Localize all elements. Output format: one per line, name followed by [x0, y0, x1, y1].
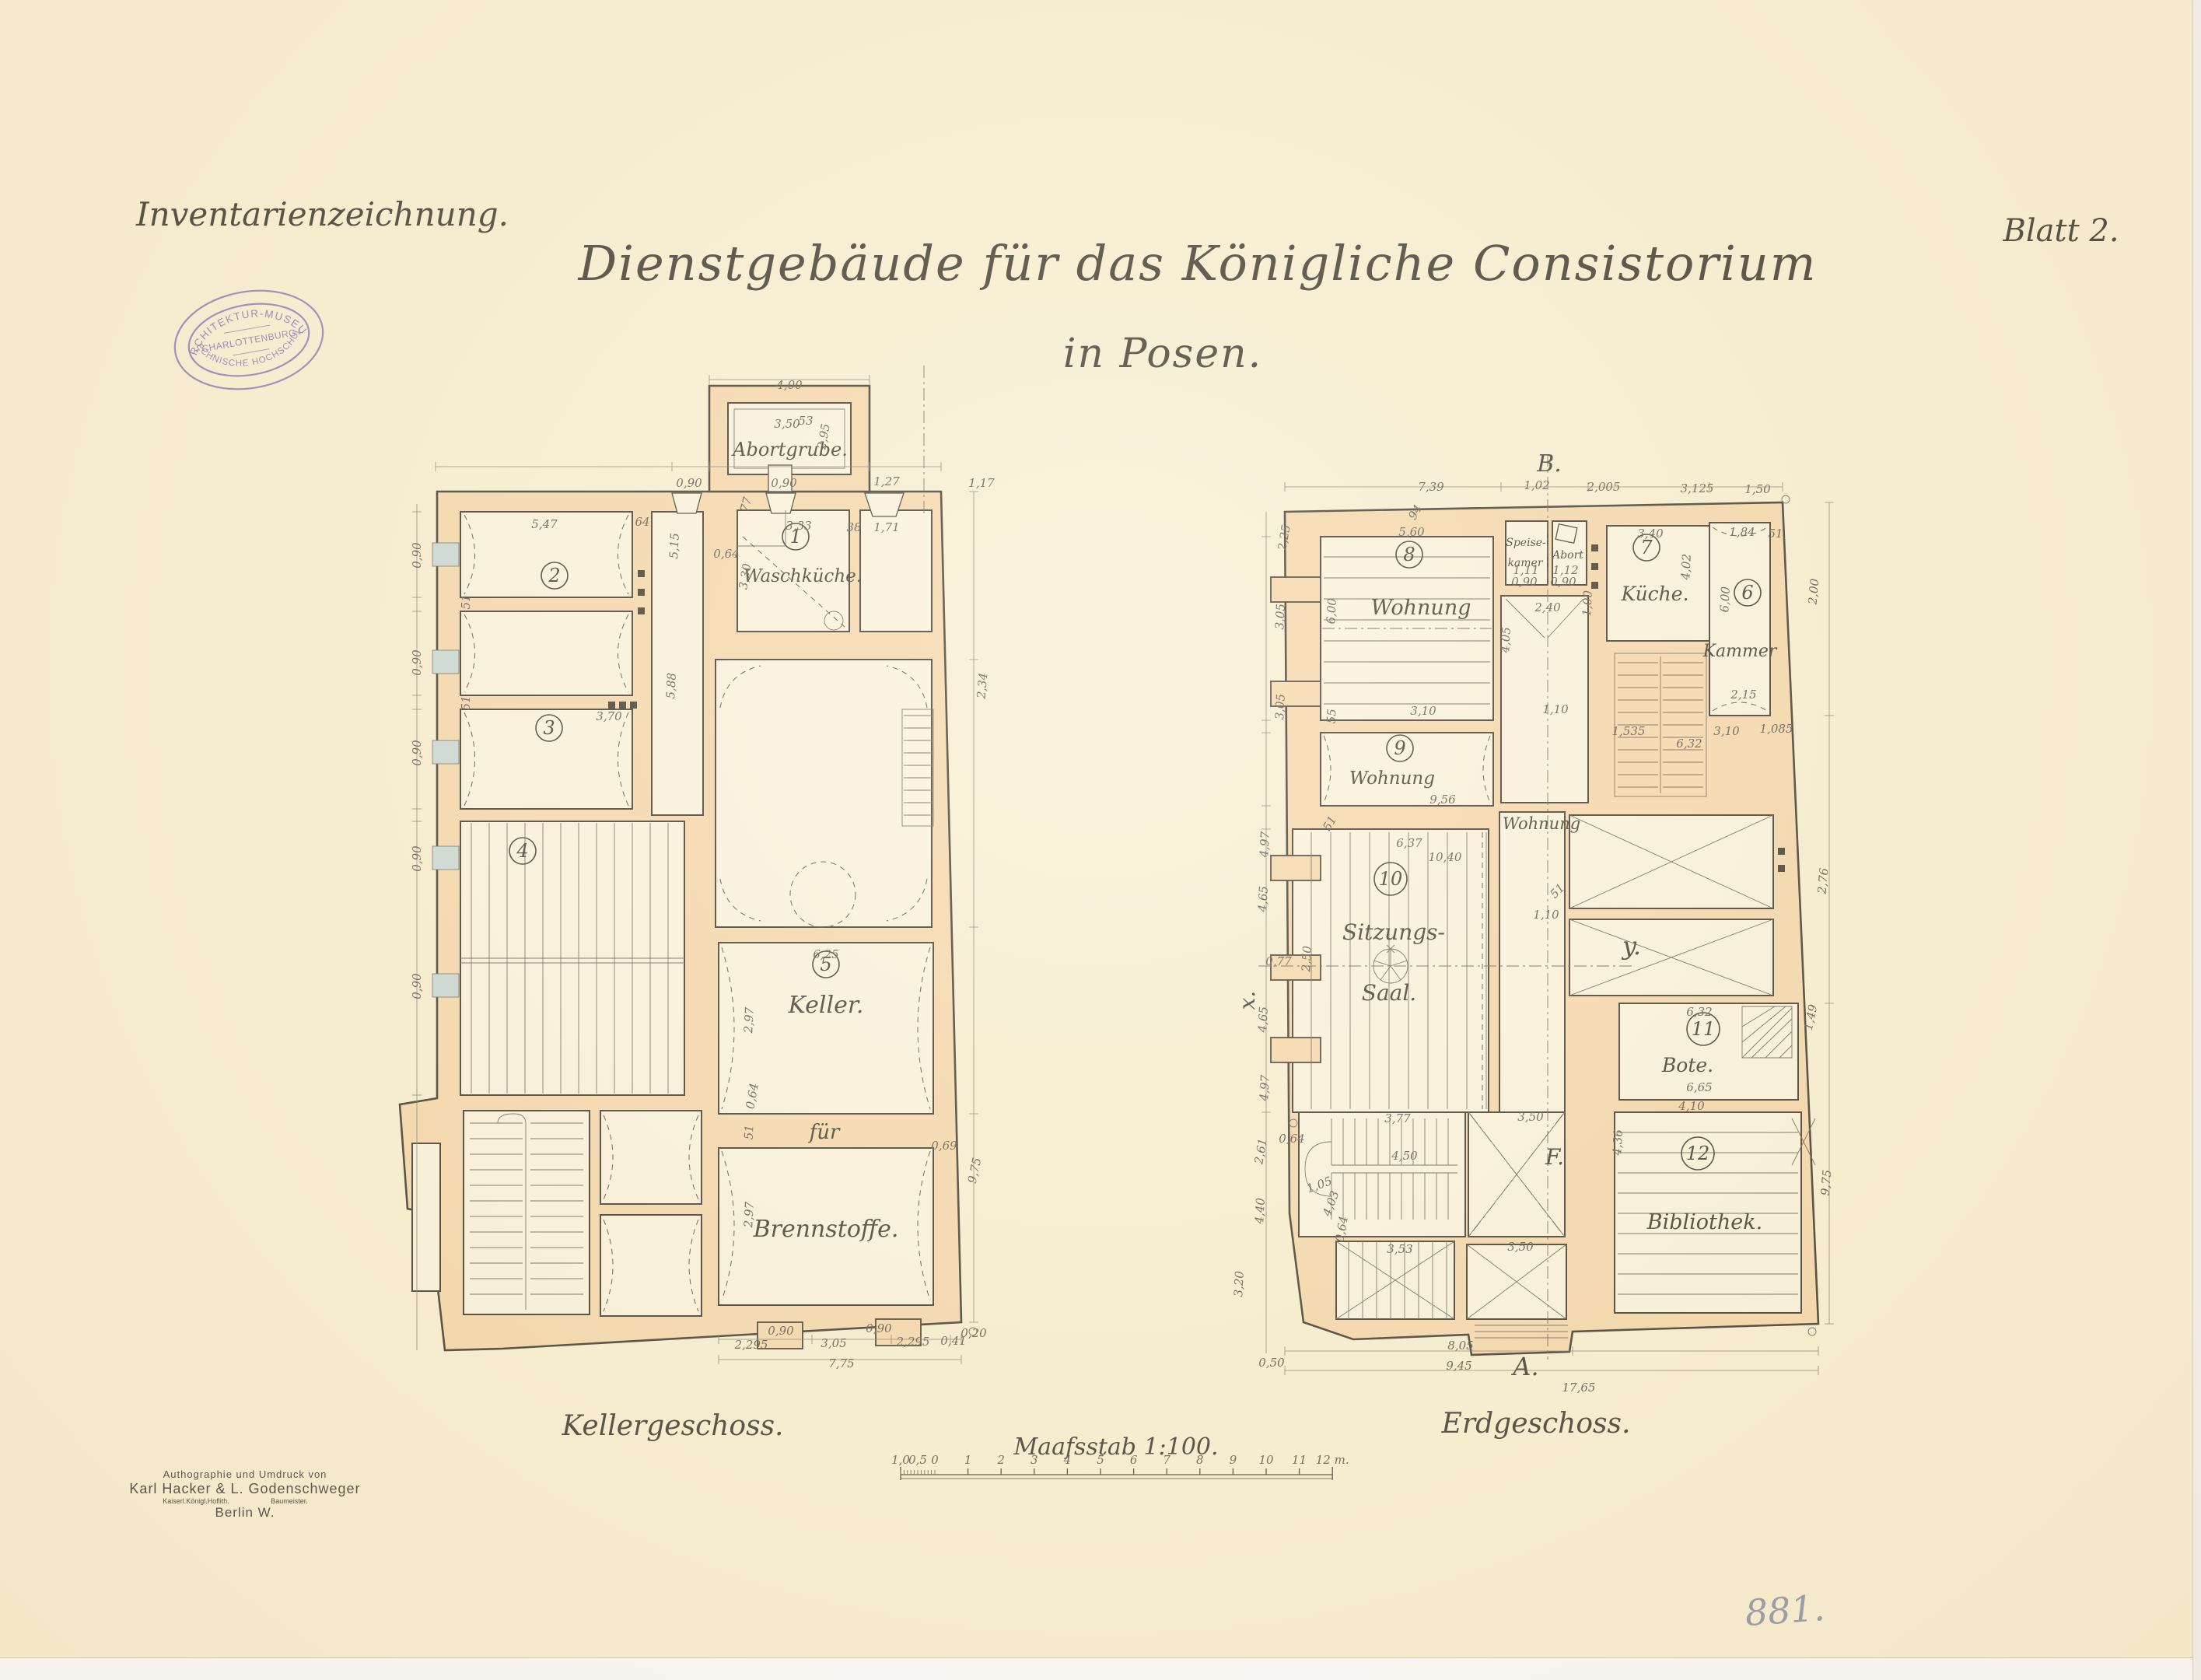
room-label: Küche. [1620, 583, 1688, 605]
scale-tick-label: 10 [1258, 1453, 1274, 1467]
plan-drawing: Inventarienzeichnung. Dienstgebäude für … [0, 0, 2201, 1680]
dimension-label: 6,00 [1324, 597, 1339, 625]
dimension-label: 2,34 [975, 672, 991, 700]
dimension-label: 0,90 [410, 649, 424, 676]
dimension-label: 5,47 [531, 517, 558, 531]
dimension-label: 1,535 [1612, 724, 1646, 738]
dimension-label: 4,97 [1257, 831, 1272, 859]
room-label: Saal. [1362, 980, 1416, 1006]
room-label: Wohnung [1370, 596, 1471, 620]
scale-tick-label: 0,5 [908, 1453, 927, 1467]
room-label: Abortgrube. [731, 439, 848, 460]
room-number: 2 [548, 565, 560, 586]
dimension-label: 17,65 [1562, 1381, 1596, 1395]
scale-bar: Maafsstab 1:100. 1,00,50123456789101112 … [891, 1433, 1349, 1480]
dimension-label: 51 [1768, 527, 1783, 541]
museum-stamp: ARCHITEKTUR-MUSEUM CHARLOTTENBURG TECHNI… [167, 279, 331, 400]
dimension-label: 9,75 [1818, 1169, 1835, 1196]
dimension-label: 64 [635, 515, 649, 529]
dimension-label: 6,00 [1717, 586, 1733, 613]
dimension-label: 1,71 [873, 520, 899, 534]
room-label: Wohnung [1503, 814, 1580, 833]
dimension-label: 2,61 [1251, 1137, 1270, 1166]
scale-tick-label: 1,0 [891, 1453, 910, 1467]
dimension-label: 7,75 [828, 1356, 854, 1370]
dimension-label: 2,005 [1587, 480, 1621, 494]
dimension-label: 0,90 [410, 740, 424, 766]
dimension-label: 4,36 [1610, 1129, 1625, 1157]
room-label: Kammer [1702, 642, 1778, 661]
dimension-label: 51 [459, 695, 473, 710]
dimension-label: 3,77 [1384, 1111, 1411, 1125]
dimension-label: 0,90 [866, 1321, 892, 1335]
sheet-number: Blatt 2. [2002, 213, 2119, 249]
dimension-label: 2,295 [734, 1338, 768, 1352]
scale-tick-label: 2 [996, 1453, 1005, 1467]
dimension-label: 3,05 [1272, 694, 1288, 720]
page-title-line1: Dienstgebäude für das Königliche Consist… [577, 235, 1817, 292]
scale-label: Maafsstab 1:100. [1013, 1433, 1218, 1461]
dimension-label: 0,90 [410, 845, 424, 872]
dimension-label: 2,40 [1534, 600, 1561, 614]
dimension-label: 0,90 [1511, 575, 1538, 589]
room-number: 6 [1741, 582, 1753, 604]
dimension-label: 9,75 [965, 1157, 985, 1185]
dimension-label: 3,50 [1507, 1240, 1534, 1254]
dimension-label: 8,05 [1447, 1339, 1473, 1353]
room-label: Waschküche. [744, 566, 862, 586]
room-number: 10 [1379, 868, 1403, 890]
dimension-label: 0,50 [1258, 1356, 1285, 1370]
dimension-label: 51 [742, 1125, 757, 1140]
dimension-label: 4,40 [1252, 1197, 1268, 1225]
room-label: Speise- [1506, 537, 1546, 549]
scale-tick-label: 3 [1031, 1453, 1038, 1467]
room-number: 4 [516, 840, 528, 862]
room-label: Brennstoffe. [753, 1216, 899, 1243]
kellergeschoss-plan [400, 366, 978, 1364]
scale-tick-label: 7 [1163, 1453, 1170, 1467]
scale-tick-label: 9 [1230, 1453, 1237, 1467]
dimension-label: 3,20 [1231, 1270, 1247, 1297]
dimension-label: 9,45 [1446, 1359, 1471, 1373]
dimension-label: 0,90 [676, 476, 702, 490]
imprint-line4: Berlin W. [215, 1505, 275, 1520]
room-number: 9 [1394, 737, 1405, 759]
dimension-label: 1,10 [1542, 702, 1569, 716]
dimension-label: 38 [846, 520, 861, 534]
dimension-label: 6,32 [1676, 737, 1702, 751]
scale-tick-label: 4 [1063, 1453, 1072, 1467]
room-label: Bote. [1661, 1054, 1713, 1076]
dimension-label: 3,10 [1410, 704, 1436, 718]
imprint-line2: Karl Hacker & L. Godenschweger [129, 1481, 360, 1496]
dimension-label: 1,085 [1760, 722, 1793, 736]
section-marker: A. [1510, 1352, 1538, 1381]
section-marker: x. [1234, 991, 1260, 1010]
room-label: Bibliothek. [1646, 1210, 1762, 1234]
dimension-label: 1,84 [1729, 525, 1755, 539]
dimension-label: 53 [798, 414, 813, 428]
scale-tick-label: 1 [964, 1453, 972, 1467]
imprint-line1: Authographie und Umdruck von [163, 1468, 327, 1480]
dimension-label: 3,05 [1272, 604, 1288, 630]
caption-erdgeschoss: Erdgeschoss. [1441, 1408, 1631, 1440]
dimension-label: 6,32 [1686, 1005, 1712, 1019]
room-number: 12 [1686, 1143, 1710, 1164]
dimension-label: 0,90 [771, 476, 797, 490]
scale-tick-label: 12 m. [1316, 1453, 1349, 1467]
dimension-label: 4,50 [1391, 1149, 1418, 1163]
room-label: Sitzungs- [1342, 919, 1445, 945]
dimension-label: 0,64 [713, 547, 739, 561]
dimension-label: 0,77 [1265, 954, 1292, 968]
dimension-label: 1,10 [1533, 908, 1559, 922]
dimension-label: 3,50 [1517, 1110, 1544, 1124]
room-number: 3 [543, 717, 555, 739]
dimension-label: 3,40 [1637, 527, 1664, 541]
room-number: 11 [1692, 1018, 1716, 1040]
scale-tick-label: 5 [1097, 1453, 1104, 1467]
section-marker: B. [1536, 450, 1562, 478]
section-marker: y. [1621, 931, 1641, 961]
dimension-label: 1,00 [1580, 590, 1595, 617]
inventory-number: 881. [1744, 1587, 1826, 1634]
scale-tick-label: 8 [1196, 1453, 1204, 1467]
dimension-label: 6,37 [1396, 836, 1422, 850]
printer-imprint: Authographie und Umdruck von Karl Hacker… [129, 1468, 360, 1520]
dimension-label: 3,33 [786, 519, 811, 533]
dimension-label: 1,17 [968, 476, 995, 490]
dimension-label: 5,88 [663, 673, 679, 699]
dimension-label: 0,90 [410, 542, 424, 569]
room-label: Keller. [788, 992, 864, 1019]
annotation-top-left: Inventarienzeichnung. [135, 195, 509, 233]
dimension-label: 4,97 [1257, 1074, 1272, 1102]
dimension-label: 51 [459, 594, 473, 609]
dimension-label: 1,27 [873, 474, 900, 488]
dimension-label: 0,90 [410, 973, 424, 999]
section-marker: F. [1545, 1144, 1564, 1170]
paper-bottom-edge [0, 1657, 2201, 1680]
dimension-label: 5,15 [667, 533, 682, 559]
scale-tick-label: 11 [1292, 1453, 1307, 1467]
room-number: 8 [1403, 544, 1415, 565]
scale-tick-label: 6 [1130, 1453, 1138, 1467]
dimension-label: 4,10 [1678, 1099, 1705, 1113]
paper-right-edge [2192, 0, 2201, 1680]
page-title-line2: in Posen. [1063, 331, 1262, 377]
scale-tick-label: 0 [931, 1453, 939, 1467]
dimension-label: 4,02 [1678, 554, 1694, 581]
dimension-label: 0,90 [768, 1324, 794, 1338]
dimension-label: 0,20 [961, 1326, 987, 1340]
dimension-label: 3,125 [1681, 481, 1714, 495]
dimension-label: 6,65 [1686, 1080, 1712, 1094]
dimension-label: 2,76 [1815, 867, 1832, 895]
dimension-label: 2,50 [1299, 945, 1314, 973]
dimension-label: 3,05 [821, 1336, 846, 1350]
imprint-line3b: Baumeister. [271, 1497, 308, 1505]
dimension-label: 1,50 [1744, 482, 1771, 496]
dimension-label: 55 [1324, 709, 1339, 724]
dimension-label: 0,64 [1279, 1132, 1304, 1146]
dimension-label: 3,53 [1387, 1242, 1412, 1256]
dimension-label: 0,69 [931, 1139, 957, 1153]
dimension-label: 9,56 [1429, 793, 1456, 807]
dimension-label: 2,15 [1730, 688, 1756, 702]
dimension-label: 2,97 [741, 1201, 757, 1229]
drawing-sheet: Inventarienzeichnung. Dienstgebäude für … [0, 0, 2201, 1680]
dimension-label: 1,02 [1524, 478, 1549, 492]
imprint-line3a: Kaiserl.Königl.Hoflith. [163, 1497, 229, 1505]
dimension-label: 4,05 [1498, 627, 1513, 654]
dimension-label: 3,50 [774, 417, 800, 431]
dimension-label: 2,295 [896, 1335, 930, 1349]
dimension-label: 2,97 [741, 1006, 757, 1034]
dimension-label: 10,40 [1429, 850, 1462, 864]
dimension-label: 6,25 [813, 947, 838, 961]
dimension-label: 7,39 [1418, 480, 1444, 494]
room-label: Abort [1551, 549, 1583, 562]
dimension-label: 2,00 [1806, 578, 1822, 606]
dimension-label: 4,65 [1255, 886, 1271, 913]
caption-kellergeschoss: Kellergeschoss. [561, 1410, 783, 1442]
dimension-label: 3,70 [596, 709, 622, 723]
room-label: Wohnung [1349, 768, 1435, 789]
room-label: für [808, 1121, 841, 1144]
dimension-label: 5,60 [1398, 525, 1425, 539]
dimension-label: 4,00 [775, 378, 803, 392]
dimension-label: 0,90 [1550, 575, 1576, 589]
dimension-label: 3,10 [1713, 724, 1740, 738]
